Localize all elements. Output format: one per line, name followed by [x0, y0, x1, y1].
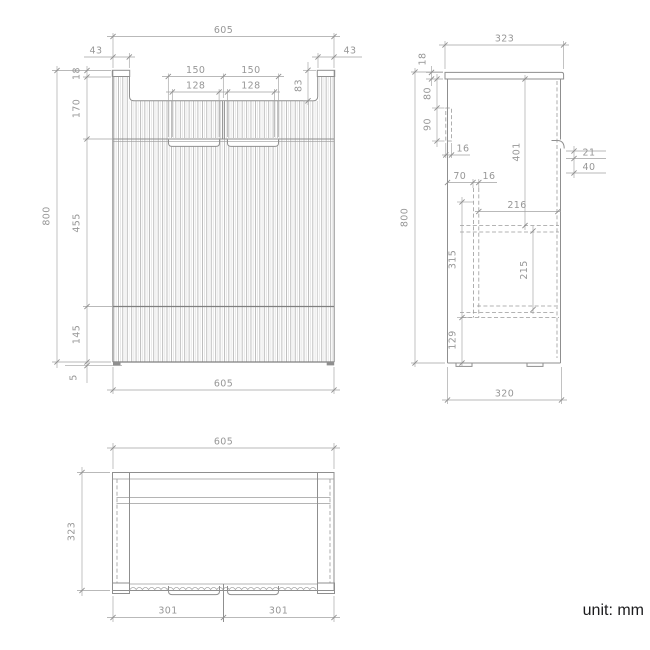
- dim-side-back-offset: 70: [453, 171, 466, 182]
- dim-side-handle-depth: 40: [583, 162, 596, 173]
- dim-front-corner-left: 43: [90, 46, 103, 57]
- side-structure: [445, 72, 564, 366]
- dim-front-overall-width: 605: [214, 25, 233, 36]
- dim-side-top-thickness: 18: [418, 53, 429, 66]
- dim-top-overall-width: 605: [214, 437, 233, 448]
- dim-front-top-cap: 18: [72, 67, 83, 80]
- front-structure: [112, 70, 334, 365]
- dim-side-panel-thickness: 16: [483, 171, 496, 182]
- top-view: 605 323 301 301: [67, 437, 341, 623]
- dim-top-overall-depth: 323: [67, 522, 78, 541]
- dim-side-overall-depth: 323: [495, 34, 514, 45]
- dim-side-overall-height: 800: [400, 208, 411, 227]
- dim-front-handle-left-outer: 150: [186, 65, 205, 76]
- dim-side-rail-thickness: 16: [457, 144, 470, 155]
- dim-front-overall-height: 800: [42, 206, 53, 225]
- dim-front-handle-right-outer: 150: [241, 65, 260, 76]
- dim-front-recess-depth: 83: [294, 79, 305, 92]
- side-dimensions: 323 18 80 90 16 401 21 40 70 16 216 315 …: [400, 34, 607, 405]
- dim-side-shelf-depth: 216: [507, 200, 526, 211]
- dim-top-door-left: 301: [158, 606, 177, 617]
- dim-front-upper-height: 170: [72, 99, 83, 118]
- vanity-drawing: 605 43 43 150 150 128 128 83 18 170 800 …: [0, 0, 650, 650]
- dim-front-kick-height: 145: [72, 325, 83, 344]
- dim-front-handle-left-inner: 128: [186, 81, 205, 92]
- dim-side-body-depth: 320: [495, 389, 514, 400]
- dim-side-inner-space: 215: [519, 260, 530, 279]
- dim-front-door-height: 455: [72, 213, 83, 232]
- dim-front-handle-right-inner: 128: [241, 81, 260, 92]
- dim-side-rail-height: 90: [423, 118, 434, 131]
- unit-label: unit: mm: [540, 602, 644, 620]
- dim-side-drawer-space: 315: [448, 250, 459, 269]
- side-view: 323 18 80 90 16 401 21 40 70 16 216 315 …: [400, 34, 607, 405]
- dim-front-foot-height: 5: [69, 374, 80, 380]
- dim-top-door-right: 301: [269, 606, 288, 617]
- dim-front-corner-right: 43: [344, 46, 357, 57]
- technical-drawing-page: 605 43 43 150 150 128 128 83 18 170 800 …: [0, 0, 650, 650]
- front-view: 605 43 43 150 150 128 128 83 18 170 800 …: [42, 25, 363, 394]
- top-structure: [113, 473, 335, 623]
- dim-front-bottom-width: 605: [214, 379, 233, 390]
- dim-side-interior-height: 401: [512, 142, 523, 161]
- dim-side-rail-offset: 80: [423, 87, 434, 100]
- dim-side-handle-lip: 21: [583, 148, 596, 159]
- dim-side-base-height: 129: [448, 330, 459, 349]
